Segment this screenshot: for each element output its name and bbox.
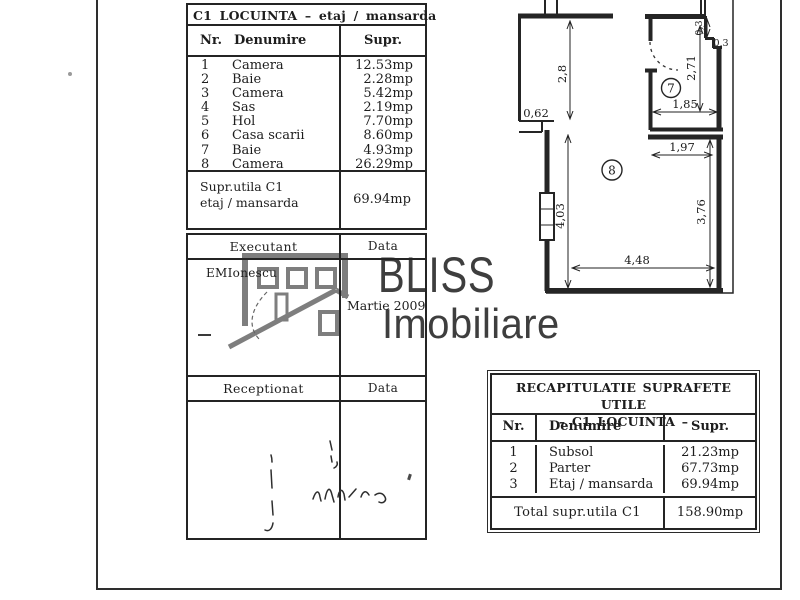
executant-data-label: Data xyxy=(341,239,425,253)
room-area: 7.70mp xyxy=(341,115,425,129)
room-name: Baie xyxy=(232,144,341,158)
subtotal-value: 69.94mp xyxy=(339,172,425,227)
table-row: 8 Camera 26.29mp xyxy=(188,158,425,172)
room-number: 2 xyxy=(188,73,232,87)
room-area: 2.28mp xyxy=(341,73,425,87)
executant-name: EMIonescu xyxy=(206,266,277,280)
receptionat-data-label: Data xyxy=(341,381,425,395)
room-table-title: C1 LOCUINTA – etaj / mansarda xyxy=(188,5,425,26)
executant-header-row: Executant Data xyxy=(188,235,425,260)
room-name: Hol xyxy=(232,115,341,129)
table-row: 3 Etaj / mansarda 69.94mp xyxy=(492,477,755,493)
dim-label-0-3-vertical: 0,3 xyxy=(694,20,705,35)
level-name: Parter xyxy=(535,461,663,477)
dim-label-2-8: 2,8 xyxy=(555,65,569,83)
dim-label-4-48: 4,48 xyxy=(624,253,650,267)
column-divider xyxy=(339,26,341,228)
room-name: Camera xyxy=(232,59,341,73)
room-table-body: 1 Camera 12.53mp 2 Baie 2.28mp 3 Camera … xyxy=(188,57,425,172)
room-name: Casa scarii xyxy=(232,129,341,143)
dim-label-0-62: 0,62 xyxy=(523,106,549,120)
dim-label-1-97: 1,97 xyxy=(669,140,695,154)
subtotal-label-line1: Supr.utila C1 xyxy=(200,179,339,195)
dim-label-3-76: 3,76 xyxy=(694,199,708,225)
room-area: 8.60mp xyxy=(341,129,425,143)
room-area: 26.29mp xyxy=(341,158,425,172)
recap-table: RECAPITULATIE SUPRAFETE UTILE – C1 LOCUI… xyxy=(490,373,757,530)
subtotal-label: Supr.utila C1 etaj / mansarda xyxy=(188,172,339,227)
table-row: 2 Baie 2.28mp xyxy=(188,73,425,87)
table-row: 7 Baie 4.93mp xyxy=(188,144,425,158)
level-area: 67.73mp xyxy=(663,461,755,477)
receptionat-label: Receptionat xyxy=(188,381,339,396)
table-row: 2 Parter 67.73mp xyxy=(492,461,755,477)
header-nr: Nr. xyxy=(200,33,222,48)
subtotal-row: Supr.utila C1 etaj / mansarda 69.94mp xyxy=(188,172,425,227)
room-area: 2.19mp xyxy=(341,101,425,115)
level-area: 69.94mp xyxy=(663,477,755,493)
sheet-border-bottom xyxy=(96,588,782,590)
room-area: 5.42mp xyxy=(341,87,425,101)
dim-label-0-3-horizontal: 0,3 xyxy=(713,38,728,49)
recap-total-row: Total supr.utila C1 158.90mp xyxy=(492,498,755,529)
sheet-border-left xyxy=(96,0,98,590)
handwritten-signature-scribble xyxy=(235,435,415,540)
recap-title-line1: RECAPITULATIE SUPRAFETE UTILE xyxy=(492,379,755,413)
room-name: Sas xyxy=(232,101,341,115)
subtotal-label-line2: etaj / mansarda xyxy=(200,195,339,211)
recap-title: RECAPITULATIE SUPRAFETE UTILE – C1 LOCUI… xyxy=(492,375,755,415)
room-area: 4.93mp xyxy=(341,144,425,158)
room-number: 6 xyxy=(188,129,232,143)
recap-body: 1 Subsol 21.23mp 2 Parter 67.73mp 3 Etaj… xyxy=(492,442,755,498)
room-number: 3 xyxy=(188,87,232,101)
room-table-header: Nr. Denumire Supr. xyxy=(188,26,425,57)
executant-signature-area: EMIonescu Martie 2009 xyxy=(188,260,425,375)
floor-plan-drawing: 2,8 0,62 4,03 4,48 1,85 2,71 0,3 0,3 1,9… xyxy=(500,0,740,305)
room-7-label: 7 xyxy=(667,82,675,96)
table-row: 5 Hol 7.70mp xyxy=(188,115,425,129)
scan-artifact xyxy=(68,72,72,76)
scanned-cadastral-sheet: BLISS Imobiliare C1 LOCUINTA – etaj / ma… xyxy=(0,0,800,600)
executant-date: Martie 2009 xyxy=(347,298,425,313)
room-number: 8 xyxy=(188,158,232,172)
level-name: Etaj / mansarda xyxy=(535,477,663,493)
room-number: 5 xyxy=(188,115,232,129)
table-row: 1 Camera 12.53mp xyxy=(188,59,425,73)
recap-header: Nr. Denumire Supr. xyxy=(492,415,755,442)
level-number: 3 xyxy=(492,477,535,493)
scan-artifact xyxy=(198,334,211,336)
dim-label-4-03: 4,03 xyxy=(553,203,567,229)
sheet-border-right xyxy=(780,0,782,590)
room-area-table: C1 LOCUINTA – etaj / mansarda Nr. Denumi… xyxy=(186,3,427,230)
plan-walls xyxy=(518,0,733,293)
table-row: 4 Sas 2.19mp xyxy=(188,101,425,115)
room-number: 7 xyxy=(188,144,232,158)
door-swing-arc xyxy=(650,42,678,70)
room-name: Camera xyxy=(232,158,341,172)
room-area: 12.53mp xyxy=(341,59,425,73)
table-row: 3 Camera 5.42mp xyxy=(188,87,425,101)
dim-label-1-85: 1,85 xyxy=(672,97,698,111)
total-label: Total supr.utila C1 xyxy=(492,498,663,529)
level-area: 21.23mp xyxy=(663,445,755,461)
header-supr: Supr. xyxy=(341,33,425,48)
room-number: 1 xyxy=(188,59,232,73)
room-8-label: 8 xyxy=(608,164,616,178)
level-number: 2 xyxy=(492,461,535,477)
room-name: Camera xyxy=(232,87,341,101)
level-number: 1 xyxy=(492,445,535,461)
header-denumire: Denumire xyxy=(234,33,306,48)
total-value: 158.90mp xyxy=(663,498,755,529)
executant-label: Executant xyxy=(188,239,339,254)
dim-label-2-71: 2,71 xyxy=(684,55,698,81)
receptionat-header-row: Receptionat Data xyxy=(188,375,425,402)
level-name: Subsol xyxy=(535,445,663,461)
table-row: 6 Casa scarii 8.60mp xyxy=(188,129,425,143)
header-supr: Supr. xyxy=(663,415,755,440)
header-denumire: Denumire xyxy=(535,415,663,440)
header-nr: Nr. xyxy=(492,415,535,440)
room-name: Baie xyxy=(232,73,341,87)
table-row: 1 Subsol 21.23mp xyxy=(492,445,755,461)
room-number: 4 xyxy=(188,101,232,115)
